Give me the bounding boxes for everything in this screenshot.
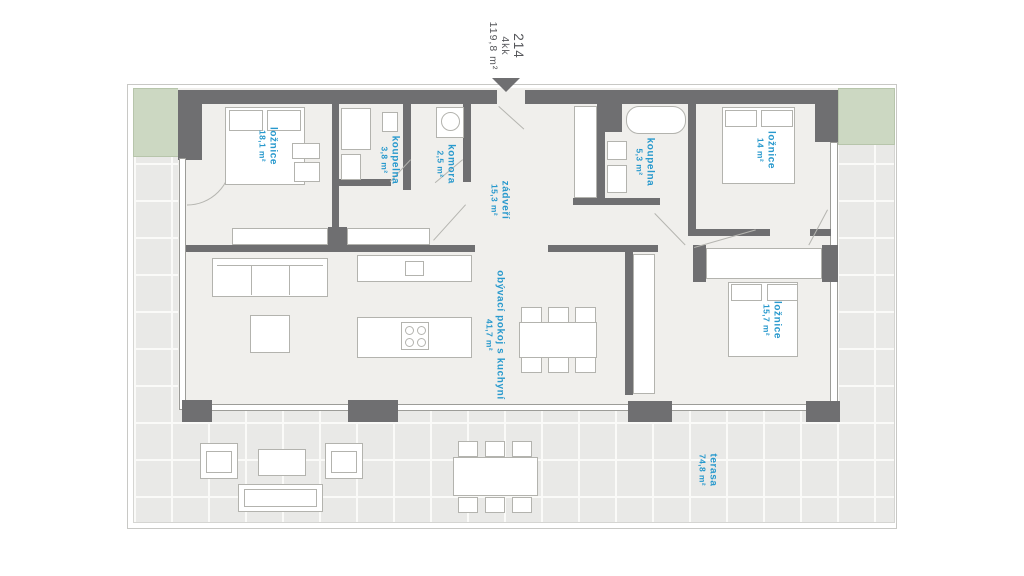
burner <box>417 338 426 347</box>
side-table <box>250 315 290 353</box>
dining-table <box>519 322 597 358</box>
terrace-chair <box>512 441 532 457</box>
floor-plan: 214 4kk 119,8 m² ložnice18,1 m² koupelna… <box>0 0 1024 576</box>
pillar-4 <box>806 401 840 422</box>
terrace-chair <box>485 497 505 513</box>
armchair-seat <box>206 451 232 473</box>
wall-top-left-segment <box>178 90 497 104</box>
wall-corner-top-right <box>815 90 838 142</box>
entrance-arrow-icon <box>492 78 520 92</box>
terrace-sofa <box>238 484 323 512</box>
terrace-chair <box>458 497 478 513</box>
dining-chair <box>521 357 542 373</box>
dining-chair <box>548 357 569 373</box>
wall-bathroom1-storage <box>403 103 411 190</box>
wall-top-right-segment <box>525 90 838 104</box>
glass-wall-left <box>179 158 186 410</box>
wall-pier <box>328 227 347 252</box>
wall-bathroom2-bedroom2 <box>688 103 696 236</box>
terrace-table <box>453 457 538 496</box>
pillar-2 <box>348 400 398 422</box>
sink-2 <box>607 141 627 160</box>
unit-disposition: 4kk <box>499 36 511 55</box>
kitchen-sink <box>405 261 424 276</box>
dining-chair <box>575 307 596 323</box>
bathtub <box>626 106 686 134</box>
sofa-back-line <box>217 265 323 266</box>
dining-chair <box>575 357 596 373</box>
wall-living-bedroom3 <box>625 252 633 395</box>
pillar-3 <box>628 401 672 422</box>
wall-bathroom2-bottom <box>573 198 660 205</box>
wall-bathroom2-stub <box>597 103 622 132</box>
sink-1 <box>382 112 398 132</box>
terrace-armchair-1 <box>200 443 238 479</box>
terrace-armchair-2 <box>325 443 363 479</box>
wardrobe-strip-1 <box>232 228 328 245</box>
shower <box>341 108 371 150</box>
glass-wall-bottom <box>186 404 832 411</box>
pillow <box>725 110 757 127</box>
terrace-chair <box>485 441 505 457</box>
unit-number: 214 <box>511 33 525 59</box>
burner <box>417 326 426 335</box>
unit-total-area: 119,8 m² <box>487 22 499 71</box>
terrace-chair <box>512 497 532 513</box>
washing-machine-drum <box>441 112 460 131</box>
planter-left <box>133 88 182 157</box>
terrace-sofa-seat <box>244 489 317 507</box>
pillar-1 <box>182 400 212 422</box>
sofa <box>212 258 328 297</box>
wall-corridor-b <box>548 245 658 252</box>
wall-closet-cap-right <box>822 245 838 282</box>
hall-wardrobe <box>574 106 597 198</box>
sofa-divider <box>289 266 290 295</box>
bedroom3-wardrobe <box>633 254 655 394</box>
pillow <box>731 284 762 301</box>
burner <box>405 326 414 335</box>
terrace-chair <box>458 441 478 457</box>
wall-corner-top-left <box>178 90 202 160</box>
planter-right <box>838 88 895 145</box>
dining-chair <box>548 307 569 323</box>
toilet-1 <box>341 154 361 180</box>
terrace-coffee-table <box>258 449 306 476</box>
sofa-divider <box>251 266 252 295</box>
pillow <box>767 284 798 301</box>
toilet-2 <box>607 165 627 193</box>
chair <box>294 162 320 182</box>
stove <box>401 322 429 350</box>
wardrobe-strip-2 <box>347 228 430 245</box>
built-in-closet <box>706 248 822 279</box>
desk <box>292 143 320 159</box>
wall-storage-hall <box>463 103 471 182</box>
wall-closet-cap-left <box>693 245 706 282</box>
pillow <box>761 110 793 127</box>
burner <box>405 338 414 347</box>
armchair-seat <box>331 451 357 473</box>
dining-chair <box>521 307 542 323</box>
